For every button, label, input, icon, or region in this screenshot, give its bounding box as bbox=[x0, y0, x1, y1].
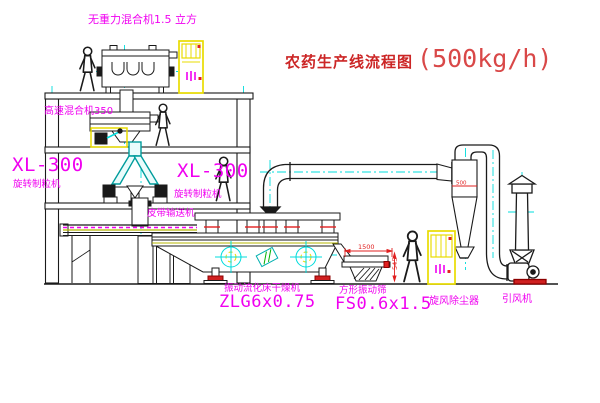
sieve-motor bbox=[384, 262, 389, 268]
cyclone-dim: 500 bbox=[456, 181, 467, 187]
label-cyclone: 旋风除尘器 bbox=[429, 297, 479, 307]
induced-draft-fan bbox=[508, 263, 546, 284]
mid-mixer bbox=[90, 112, 158, 147]
exhaust-stack bbox=[509, 176, 535, 264]
dryer-stubs bbox=[204, 220, 336, 233]
diagram-title: 农药生产线流程图 (500kg/h) bbox=[285, 44, 552, 73]
person-figure bbox=[80, 47, 95, 90]
title-capacity: (500kg/h) bbox=[417, 44, 552, 73]
top-mixer bbox=[97, 46, 177, 114]
label-granulator-left-name: 旋转制粒机 bbox=[13, 180, 61, 190]
granulator-down-chute bbox=[132, 198, 148, 226]
label-sieve-model: FS0.6x1.5 bbox=[335, 296, 432, 313]
indicator-dot bbox=[198, 45, 201, 48]
indicator-dot bbox=[449, 237, 452, 240]
sieve-height-dim: 545 bbox=[391, 258, 399, 270]
person-figure bbox=[403, 231, 420, 281]
title-chinese: 农药生产线流程图 bbox=[285, 51, 413, 72]
label-mid-mixer: 高速混合机350 bbox=[44, 107, 113, 117]
exhaust-duct bbox=[261, 162, 437, 217]
label-granulator-mid-name: 旋转制粒机 bbox=[174, 190, 222, 200]
label-top-mixer: 无重力混合机1.5 立方 bbox=[88, 14, 197, 25]
fan-base bbox=[514, 280, 546, 285]
mixer-discharge-chute bbox=[120, 90, 133, 113]
label-belt-conveyor: 皮带输送机 bbox=[147, 209, 195, 219]
vibrating-sieve: 1500 545 bbox=[333, 243, 399, 281]
stack-rain-cap bbox=[509, 176, 535, 185]
label-fan: 引风机 bbox=[502, 295, 532, 305]
sieve-width-dim: 1500 bbox=[358, 243, 375, 251]
person-figure bbox=[156, 104, 170, 145]
control-cabinet-top bbox=[179, 41, 203, 93]
label-granulator-left-model: XL-300 bbox=[12, 156, 84, 175]
flow-diagram-canvas: 1500 545 500 bbox=[0, 0, 600, 403]
label-dryer-model: ZLG6x0.75 bbox=[219, 294, 316, 311]
control-cabinet-right bbox=[428, 231, 455, 284]
label-granulator-mid-model: XL-300 bbox=[177, 162, 249, 181]
